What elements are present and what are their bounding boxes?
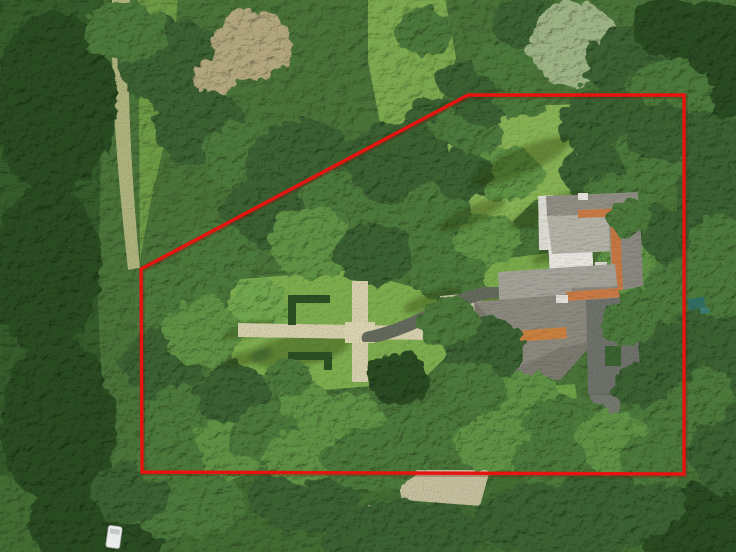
tree-canopy [608, 360, 664, 404]
chimney-south [556, 295, 568, 303]
chimney-north [578, 193, 588, 200]
tree-canopy [363, 348, 427, 400]
tree-canopy [436, 359, 504, 411]
tree-canopy [603, 197, 647, 233]
aerial-photo [0, 0, 736, 552]
tree-canopy [80, 0, 164, 58]
white-van [106, 525, 123, 549]
hedge-island [605, 346, 621, 366]
tree-canopy [225, 274, 285, 326]
tree-canopy [415, 294, 475, 342]
van-body [106, 525, 123, 549]
aerial-photo-canvas [0, 0, 736, 552]
tree-canopy [597, 298, 653, 342]
tree-canopy [258, 354, 306, 390]
tree-canopy [390, 4, 450, 52]
tree-canopy [320, 426, 420, 486]
tree-canopy [330, 218, 410, 282]
tree-canopy [188, 54, 232, 90]
